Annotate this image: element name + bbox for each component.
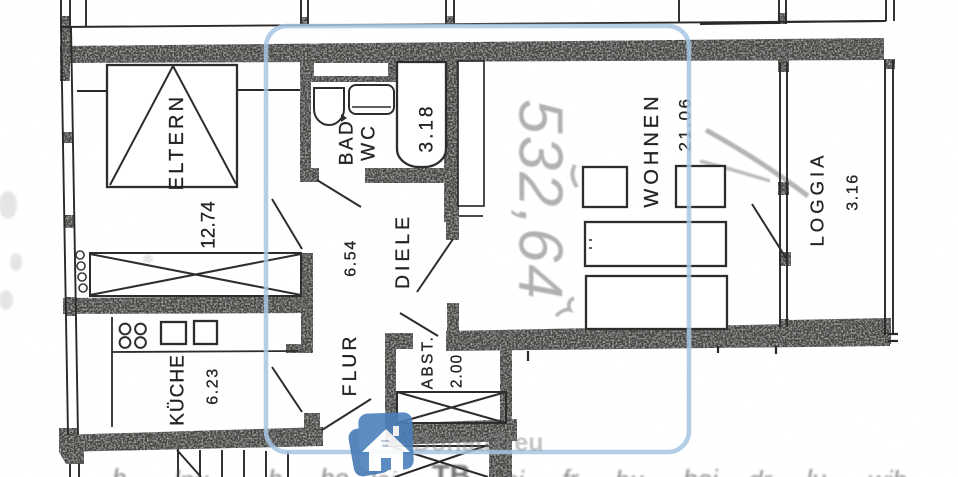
svg-text:DIELE: DIELE: [392, 213, 414, 289]
svg-text:3.16: 3.16: [845, 173, 862, 211]
svg-text:ABST.: ABST.: [420, 335, 437, 390]
svg-text:lu: lu: [806, 464, 826, 477]
svg-text:KÜCHE: KÜCHE: [168, 354, 189, 426]
svg-text:hu: hu: [615, 465, 644, 477]
svg-text:BAD: BAD: [337, 119, 358, 166]
svg-text:WOHNEN: WOHNEN: [641, 92, 663, 207]
svg-text:LOGGIA: LOGGIA: [807, 152, 828, 247]
svg-text:si: si: [505, 465, 525, 477]
svg-text:21.06: 21.06: [676, 96, 695, 151]
svg-text:TB: TB: [432, 460, 471, 477]
svg-text:FLUR: FLUR: [339, 334, 361, 397]
svg-text:wih: wih: [868, 465, 907, 477]
svg-text:he: he: [320, 463, 349, 477]
svg-text:h: h: [268, 464, 282, 477]
svg-text:h.: h.: [112, 463, 134, 477]
svg-text:WC: WC: [359, 123, 380, 161]
svg-text:bei: bei: [683, 464, 719, 477]
svg-text:lnu: lnu: [174, 465, 209, 477]
svg-text:DonauTreu: DonauTreu: [413, 429, 544, 457]
svg-text:12.74: 12.74: [199, 201, 220, 249]
svg-text:532,64: 532,64: [506, 99, 575, 301]
svg-text:6.54: 6.54: [343, 239, 360, 277]
svg-text:dr: dr: [748, 465, 772, 477]
svg-text:fr: fr: [562, 464, 579, 477]
svg-text:ELTERN: ELTERN: [166, 94, 188, 191]
svg-text:3.18: 3.18: [417, 104, 438, 153]
svg-text:2.00: 2.00: [449, 354, 466, 388]
svg-text:6.23: 6.23: [205, 367, 222, 405]
